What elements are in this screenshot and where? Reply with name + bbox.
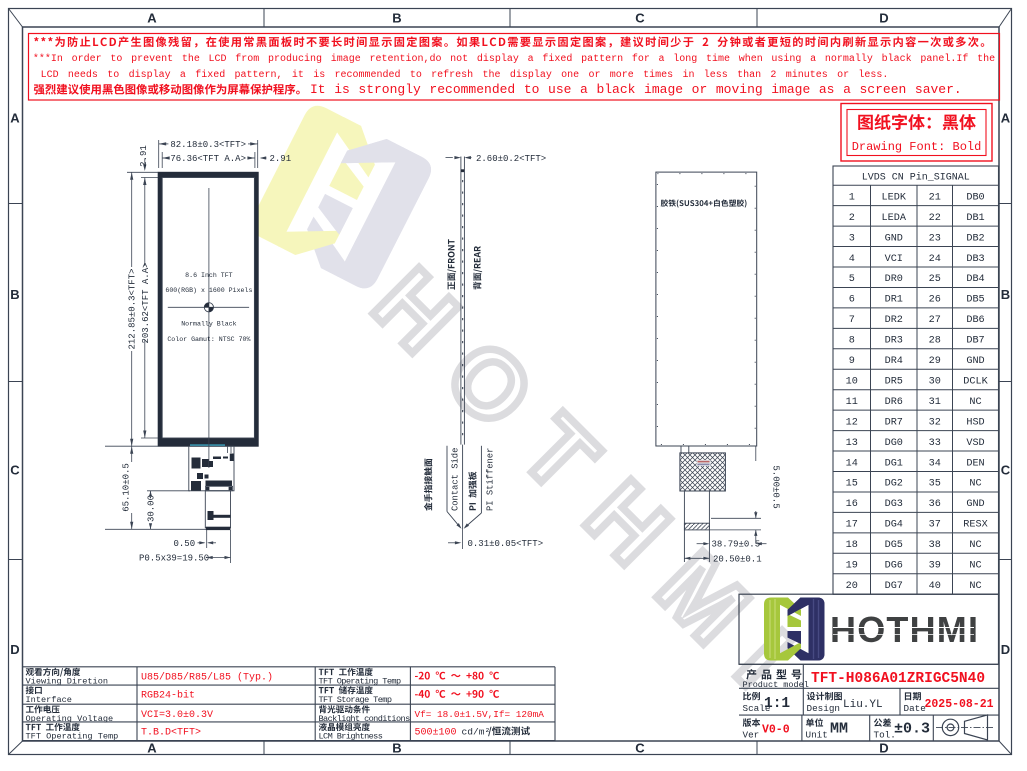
svg-text:LCD needs to display a fixed p: LCD needs to display a fixed pattern, it…: [41, 69, 889, 81]
svg-text:DG7: DG7: [885, 581, 903, 592]
svg-text:C: C: [635, 11, 645, 26]
svg-text:Ver: Ver: [743, 730, 760, 741]
svg-text:38: 38: [929, 540, 941, 551]
svg-text:HOTHMI: HOTHMI: [830, 609, 979, 650]
svg-text:NC: NC: [969, 561, 981, 572]
svg-text:It is strongly recommended to: It is strongly recommended to use a blac…: [310, 82, 962, 97]
svg-text:TFT Operating Temp: TFT Operating Temp: [319, 677, 401, 687]
svg-text:7: 7: [849, 315, 855, 326]
svg-text:6: 6: [849, 295, 855, 306]
svg-text:A: A: [147, 11, 157, 26]
svg-text:B: B: [392, 741, 401, 756]
svg-text:DB7: DB7: [966, 336, 984, 347]
svg-text:DG0: DG0: [885, 438, 903, 449]
svg-text:8: 8: [849, 336, 855, 347]
svg-text:21: 21: [929, 192, 941, 203]
svg-text:13: 13: [846, 438, 858, 449]
svg-text:GND: GND: [885, 233, 903, 244]
svg-text:20: 20: [846, 581, 858, 592]
svg-text:LCM Brightness: LCM Brightness: [319, 732, 383, 742]
svg-text:DR2: DR2: [885, 315, 903, 326]
svg-text:LEDK: LEDK: [882, 192, 907, 203]
svg-text:2.91: 2.91: [139, 145, 149, 167]
svg-text:36: 36: [929, 499, 941, 510]
svg-text:DB2: DB2: [966, 233, 984, 244]
svg-text:20.50±0.1: 20.50±0.1: [713, 554, 762, 564]
svg-text:Vf= 18.0±1.5V,If= 120mA: Vf= 18.0±1.5V,If= 120mA: [415, 709, 545, 720]
svg-text:NC: NC: [969, 397, 981, 408]
svg-text:0.31±0.05<TFT>: 0.31±0.05<TFT>: [468, 539, 544, 549]
svg-text:GND: GND: [966, 356, 984, 367]
svg-text:30: 30: [929, 376, 941, 387]
svg-text:25: 25: [929, 274, 941, 285]
svg-text:30.00: 30.00: [147, 495, 157, 522]
svg-text:40: 40: [929, 581, 941, 592]
svg-text:D: D: [1001, 642, 1010, 657]
svg-text:C: C: [10, 463, 20, 478]
svg-text:12: 12: [846, 417, 858, 428]
svg-text:1:1: 1:1: [764, 696, 790, 712]
svg-text:4: 4: [849, 254, 855, 265]
svg-text:1: 1: [849, 192, 855, 203]
svg-text:34: 34: [929, 458, 941, 469]
svg-text:10: 10: [846, 376, 858, 387]
svg-text:14: 14: [846, 458, 858, 469]
svg-text:NC: NC: [969, 540, 981, 551]
svg-text:LVDS CN Pin_SIGNAL: LVDS CN Pin_SIGNAL: [862, 172, 970, 184]
svg-text:DR1: DR1: [885, 295, 903, 306]
svg-text:LEDA: LEDA: [882, 213, 907, 224]
svg-text:DB0: DB0: [966, 192, 984, 203]
svg-text:38.79±0.5: 38.79±0.5: [712, 540, 761, 550]
svg-text:Normally Black: Normally Black: [181, 320, 236, 327]
svg-text:39: 39: [929, 561, 941, 572]
svg-text:212.85±0.3<TFT>: 212.85±0.3<TFT>: [128, 268, 138, 349]
svg-text:DR3: DR3: [885, 336, 903, 347]
svg-text:NC: NC: [969, 479, 981, 490]
svg-text:A: A: [1001, 111, 1011, 126]
svg-text:PI Stiffener: PI Stiffener: [485, 448, 495, 511]
svg-text:18: 18: [846, 540, 858, 551]
svg-text:22: 22: [929, 213, 941, 224]
svg-text:NC: NC: [969, 581, 981, 592]
svg-text:cd/m²: cd/m²: [462, 727, 491, 738]
svg-text:Drawing Font: Bold: Drawing Font: Bold: [852, 140, 982, 154]
svg-text:2.60±0.2<TFT>: 2.60±0.2<TFT>: [476, 154, 546, 164]
svg-text:DG6: DG6: [885, 561, 903, 572]
svg-text:33: 33: [929, 438, 941, 449]
svg-text:Color Gamut: NTSC 70%: Color Gamut: NTSC 70%: [167, 336, 250, 343]
svg-text:B: B: [1001, 287, 1010, 302]
svg-text:TFT Storage Temp: TFT Storage Temp: [319, 695, 392, 705]
svg-text:0.50: 0.50: [174, 539, 196, 549]
svg-text:DB5: DB5: [966, 295, 984, 306]
svg-text:3: 3: [849, 233, 855, 244]
svg-text:26: 26: [929, 295, 941, 306]
svg-text:DEN: DEN: [966, 458, 984, 469]
svg-text:2025-08-21: 2025-08-21: [925, 698, 994, 711]
svg-text:A: A: [147, 741, 157, 756]
svg-text:8.6 Inch TFT: 8.6 Inch TFT: [185, 272, 233, 279]
svg-text:82.18±0.3<TFT>: 82.18±0.3<TFT>: [170, 140, 246, 150]
svg-text:76.36<TFT A.A>: 76.36<TFT A.A>: [170, 154, 246, 164]
svg-text:DG3: DG3: [885, 499, 903, 510]
svg-text:35: 35: [929, 479, 941, 490]
svg-text:DB3: DB3: [966, 254, 984, 265]
svg-text:Interface: Interface: [26, 695, 72, 705]
svg-text:A: A: [10, 111, 20, 126]
svg-text:TFT-H086A01ZRIGC5N40: TFT-H086A01ZRIGC5N40: [811, 671, 985, 687]
svg-text:Tol.: Tol.: [874, 730, 896, 741]
svg-text:Unit: Unit: [806, 730, 828, 741]
svg-text:±0.3: ±0.3: [894, 721, 930, 738]
svg-text:32: 32: [929, 417, 941, 428]
svg-text:Date: Date: [904, 703, 926, 714]
svg-text:31: 31: [929, 397, 941, 408]
svg-text:D: D: [879, 741, 888, 756]
svg-text:23: 23: [929, 233, 941, 244]
svg-text:VSD: VSD: [966, 438, 984, 449]
svg-text:Backlight conditions: Backlight conditions: [319, 714, 411, 724]
svg-text:15: 15: [846, 479, 858, 490]
svg-text:24: 24: [929, 254, 941, 265]
svg-text:B: B: [392, 11, 401, 26]
svg-text:27: 27: [929, 315, 941, 326]
svg-text:600(RGB) x 1600 Pixels: 600(RGB) x 1600 Pixels: [165, 287, 252, 294]
svg-text:5.00±0.5: 5.00±0.5: [770, 465, 780, 508]
svg-text:11: 11: [846, 397, 858, 408]
svg-text:17: 17: [846, 520, 858, 531]
svg-text:***In order to prevent the LCD: ***In order to prevent the LCD from prod…: [33, 53, 995, 65]
svg-text:Viewing Diretion: Viewing Diretion: [26, 677, 109, 687]
svg-text:P0.5x39=19.50: P0.5x39=19.50: [139, 554, 209, 564]
svg-text:C: C: [635, 741, 645, 756]
svg-text:DR0: DR0: [885, 274, 903, 285]
svg-text:DR7: DR7: [885, 417, 903, 428]
svg-text:DG5: DG5: [885, 540, 903, 551]
svg-text:16: 16: [846, 499, 858, 510]
svg-text:DB1: DB1: [966, 213, 984, 224]
svg-text:DR5: DR5: [885, 376, 903, 387]
svg-text:29: 29: [929, 356, 941, 367]
svg-text:Operating Voltage: Operating Voltage: [26, 714, 114, 724]
svg-text:U85/D85/R85/L85 (Typ.): U85/D85/R85/L85 (Typ.): [141, 671, 273, 683]
svg-text:T.B.D<TFT>: T.B.D<TFT>: [141, 728, 201, 739]
svg-text:DR6: DR6: [885, 397, 903, 408]
svg-text:VCI=3.0±0.3V: VCI=3.0±0.3V: [141, 710, 213, 721]
svg-text:DG1: DG1: [885, 458, 903, 469]
svg-text:RGB24-bit: RGB24-bit: [141, 690, 195, 702]
svg-text:DCLK: DCLK: [963, 376, 988, 387]
svg-text:D: D: [10, 642, 19, 657]
svg-text:2.91: 2.91: [270, 154, 292, 164]
svg-text:MM: MM: [830, 721, 848, 738]
svg-text:B: B: [10, 287, 19, 302]
svg-text:V0-0: V0-0: [762, 724, 790, 737]
svg-text:Contact Side: Contact Side: [451, 448, 461, 511]
svg-text:37: 37: [929, 520, 941, 531]
svg-text:D: D: [879, 11, 888, 26]
svg-text:19: 19: [846, 561, 858, 572]
svg-text:28: 28: [929, 336, 941, 347]
svg-text:DB4: DB4: [966, 274, 984, 285]
svg-text:203.62<TFT A.A>: 203.62<TFT A.A>: [141, 262, 151, 343]
svg-text:DB6: DB6: [966, 315, 984, 326]
svg-text:HSD: HSD: [966, 417, 984, 428]
svg-text:C: C: [1001, 463, 1011, 478]
svg-text:GND: GND: [966, 499, 984, 510]
svg-text:2: 2: [849, 213, 855, 224]
svg-text:VCI: VCI: [885, 254, 903, 265]
svg-text:500±100: 500±100: [415, 728, 457, 739]
svg-text:65.10±0.5: 65.10±0.5: [122, 463, 132, 512]
svg-text:DG4: DG4: [885, 520, 903, 531]
svg-text:RESX: RESX: [963, 520, 987, 531]
svg-text:Design: Design: [807, 703, 840, 714]
svg-text:DG2: DG2: [885, 479, 903, 490]
svg-text:5: 5: [849, 274, 855, 285]
svg-text:Liu.YL: Liu.YL: [843, 699, 883, 711]
svg-text:DR4: DR4: [885, 356, 903, 367]
svg-text:TFT Operating Temp: TFT Operating Temp: [26, 732, 119, 742]
svg-text:9: 9: [849, 356, 855, 367]
